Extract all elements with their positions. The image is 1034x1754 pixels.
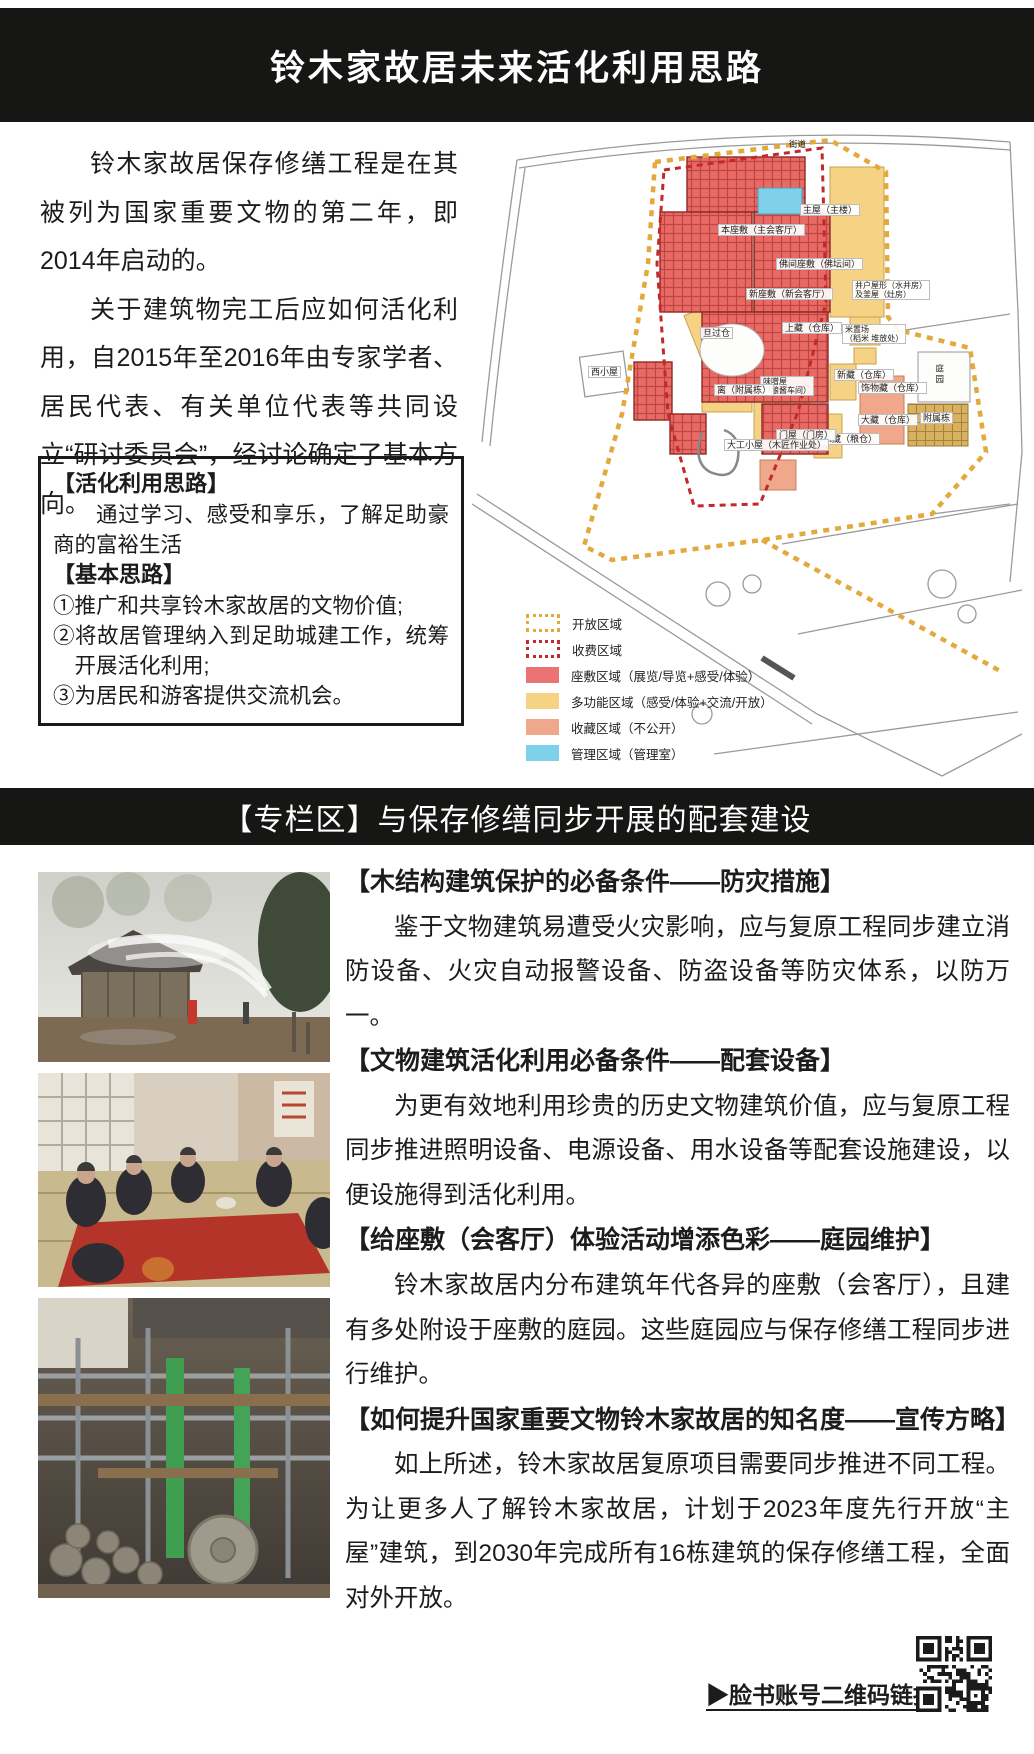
map-label-hon-zashiki: 本座敷（主会客厅） — [718, 224, 805, 236]
page-title-banner: 铃木家故居未来活化利用思路 — [0, 8, 1034, 122]
map-label-garden: 庭园 — [932, 364, 946, 385]
map-label-hanare: 离（附属栋） — [714, 384, 774, 396]
map-legend: 开放区域 收费区域 座敷区域（展览/导览+感受/体验） 多功能区域（感受/体验+… — [526, 610, 773, 766]
qr-code — [916, 1636, 992, 1712]
idea-box-title-2: 【基本思路】 — [53, 560, 449, 591]
map-label-kazari-kura: 饰物藏（仓库） — [858, 382, 927, 394]
map-label-main-house: 主屋（主楼） — [800, 204, 860, 216]
article-heading-garden: 【给座敷（会客厅）体验活动增添色彩——庭园维护】 — [345, 1218, 1010, 1264]
map-label-well-house: 井户屋形（水井房） 及釜屋（灶房） — [852, 280, 930, 300]
legend-item-multi: 多功能区域（感受/体验+交流/开放） — [526, 688, 773, 714]
map-label-shin-kura: 新藏（仓库） — [834, 369, 894, 381]
map-label-west-shed: 西小屋 — [588, 366, 621, 378]
legend-swatch-open-dashed — [526, 614, 560, 632]
intro-paragraph-1: 铃木家故居保存修缮工程是在其被列为国家重要文物的第二年，即2014年启动的。 — [40, 140, 458, 286]
article-body-disaster: 鉴于文物建筑易遭受火灾影响，应与复原工程同步建立消防设备、火灾自动报警设备、防盗… — [345, 906, 1010, 1040]
photo-column — [38, 872, 330, 1609]
map-label-shin-zashiki: 新座敷（新会客厅） — [746, 288, 833, 300]
idea-box-title-1: 【活化利用思路】 — [53, 469, 449, 500]
column-section-title: 【专栏区】与保存修缮同步开展的配套建设 — [223, 795, 812, 839]
map-label-tanka-kura: 旦过仓 — [700, 327, 733, 339]
legend-item-zashiki: 座敷区域（展览/导览+感受/体验） — [526, 662, 773, 688]
facebook-qr-caption[interactable]: ▶脸书账号二维码链接 — [706, 1676, 936, 1710]
legend-item-storage: 收藏区域（不公开） — [526, 714, 773, 740]
page-title: 铃木家故居未来活化利用思路 — [270, 40, 764, 91]
legend-swatch-management — [526, 745, 559, 761]
photo-zashiki-meeting — [38, 1073, 330, 1287]
map-label-annex: 附属栋 — [920, 412, 953, 424]
article-heading-disaster: 【木结构建筑保护的必备条件——防灾措施】 — [345, 860, 1010, 906]
map-label-butsuma: 佛间座敷（佛坛间） — [776, 258, 863, 270]
map-label-o-kura: 大藏（仓库） — [858, 414, 918, 426]
article-body-garden: 铃木家故居内分布建筑年代各异的座敷（会客厅），且建有多处附设于座敷的庭园。这些庭… — [345, 1264, 1010, 1398]
idea-box-item-3: ③为居民和游客提供交流机会。 — [53, 681, 449, 711]
legend-swatch-multi — [526, 693, 559, 709]
article-heading-equipment: 【文物建筑活化利用必备条件——配套设备】 — [345, 1039, 1010, 1085]
idea-box-item-1: ①推广和共享铃木家故居的文物价值; — [53, 591, 449, 621]
legend-swatch-storage — [526, 719, 559, 735]
article-body-publicity: 如上所述，铃木家故居复原项目需要同步推进不同工程。为让更多人了解铃木家故居，计划… — [345, 1443, 1010, 1621]
map-street-label: 街道 — [787, 140, 808, 150]
photo-fire-drill — [38, 872, 330, 1062]
photo-restoration-site — [38, 1298, 330, 1598]
idea-box-item-2: ②将故居管理纳入到足助城建工作，统筹开展活化利用; — [53, 621, 449, 681]
legend-item-management: 管理区域（管理室） — [526, 740, 773, 766]
column-section-banner: 【专栏区】与保存修缮同步开展的配套建设 — [0, 788, 1034, 845]
poster-page: 铃木家故居未来活化利用思路 铃木家故居保存修缮工程是在其被列为国家重要文物的第二… — [0, 0, 1034, 1754]
map-label-rice-yard: 米置场 （稻米 堆放处） — [842, 324, 906, 344]
article-heading-publicity: 【如何提升国家重要文物铃木家故居的知名度——宣传方略】 — [345, 1398, 1010, 1444]
map-label-kami-kura: 上藏（仓库） — [782, 322, 842, 334]
article-body-equipment: 为更有效地利用珍贵的历史文物建筑价值，应与复原工程同步推进照明设备、电源设备、用… — [345, 1085, 1010, 1219]
legend-swatch-fee-dashed — [526, 640, 560, 658]
legend-item-fee: 收费区域 — [526, 636, 773, 662]
utilization-idea-box: 【活化利用思路】 通过学习、感受和享乐，了解足助豪商的富裕生活 【基本思路】 ①… — [38, 456, 464, 726]
map-label-carpenter-shed: 大工小屋（木匠作业处） — [724, 439, 829, 451]
articles-column: 【木结构建筑保护的必备条件——防灾措施】 鉴于文物建筑易遭受火灾影响，应与复原工… — [345, 860, 1010, 1622]
idea-box-body-1: 通过学习、感受和享乐，了解足助豪商的富裕生活 — [53, 500, 449, 560]
legend-item-open: 开放区域 — [526, 610, 773, 636]
site-plan-map: 街道 主屋（主楼） 本座敷（主会客厅） 佛间座敷（佛坛间） 新座敷（新会客厅） … — [462, 112, 1024, 792]
legend-swatch-zashiki — [526, 667, 559, 683]
